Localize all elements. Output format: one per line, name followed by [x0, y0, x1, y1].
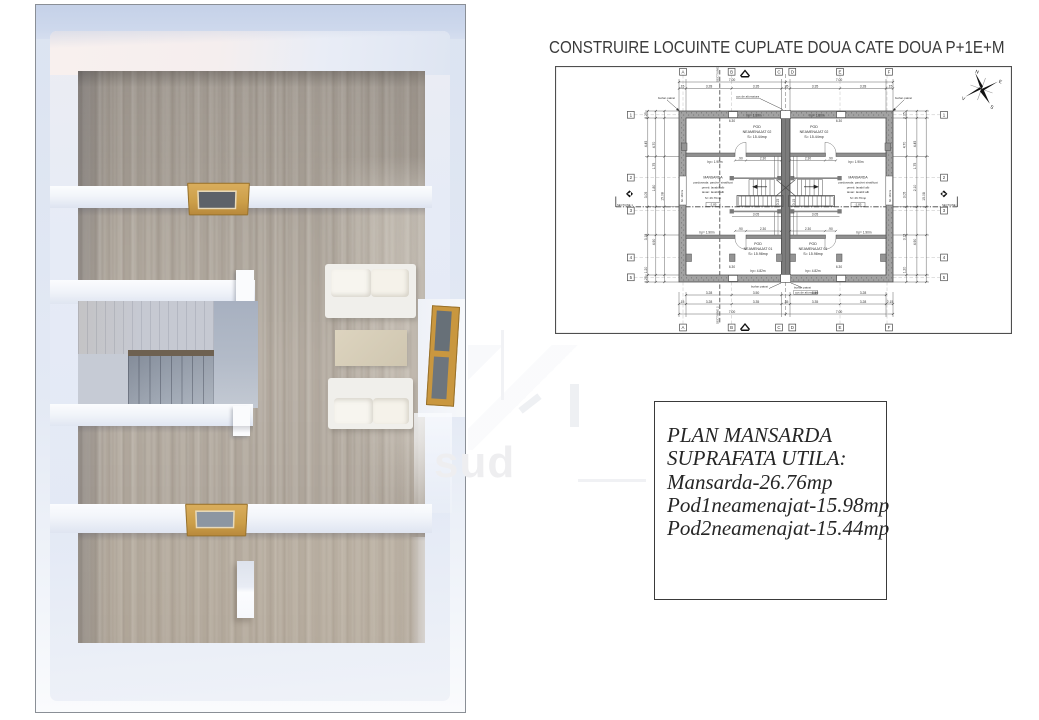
svg-text:3.35: 3.35: [753, 85, 760, 89]
svg-text:.15: .15: [888, 85, 893, 89]
svg-text:SECTIUNE 1: SECTIUNE 1: [942, 203, 958, 207]
svg-text:1.75: 1.75: [652, 163, 656, 170]
svg-text:hp= 1.90m: hp= 1.90m: [699, 231, 714, 235]
svg-text:6.30: 6.30: [729, 119, 735, 123]
svg-text:E: E: [839, 325, 842, 330]
svg-text:fer. 140cm: fer. 140cm: [888, 190, 892, 202]
svg-text:C: C: [777, 69, 780, 74]
svg-text:1.80: 1.80: [652, 185, 656, 192]
svg-text:3.05: 3.05: [812, 213, 819, 217]
svg-text:MANSARDA: MANSARDA: [703, 175, 723, 179]
svg-text:burlan patrat: burlan patrat: [895, 96, 912, 100]
svg-text:hp= 1.90m: hp= 1.90m: [856, 231, 871, 235]
svg-text:SECTIUNE 1: SECTIUNE 1: [617, 203, 633, 207]
svg-text:6.30: 6.30: [836, 119, 842, 123]
svg-text:S= 15.98mp: S= 15.98mp: [803, 252, 822, 256]
svg-text:2.15: 2.15: [887, 300, 894, 304]
svg-text:hp= 1.80m: hp= 1.80m: [746, 113, 761, 117]
svg-text:3.50: 3.50: [753, 291, 760, 295]
svg-text:S= 15.98mp: S= 15.98mp: [748, 252, 767, 256]
svg-text:MANSARDA: MANSARDA: [848, 175, 868, 179]
svg-text:.90: .90: [828, 227, 833, 231]
svg-text:D: D: [791, 325, 794, 330]
svg-text:15.08: 15.08: [922, 192, 926, 201]
svg-text:pereti: lavabil alb: pereti: lavabil alb: [847, 185, 870, 189]
svg-text:B: B: [730, 325, 733, 330]
svg-text:6.30: 6.30: [836, 265, 842, 269]
svg-text:15.08: 15.08: [660, 192, 664, 201]
svg-text:7.00: 7.00: [729, 310, 736, 314]
svg-text:burlan patrat: burlan patrat: [794, 286, 811, 290]
svg-text:POD: POD: [754, 242, 762, 246]
svg-text:2.30: 2.30: [760, 157, 766, 161]
svg-text:hp= 4.82m: hp= 4.82m: [750, 269, 765, 273]
svg-text:cos de afumatura: cos de afumatura: [795, 291, 819, 295]
svg-text:POD: POD: [809, 242, 817, 246]
svg-text:-2.85: -2.85: [855, 203, 862, 207]
svg-text:2.30: 2.30: [805, 157, 811, 161]
svg-text:7.00: 7.00: [836, 78, 843, 82]
svg-text:7.00: 7.00: [729, 78, 736, 82]
svg-text:.15: .15: [680, 300, 685, 304]
svg-text:3.28: 3.28: [860, 300, 867, 304]
svg-text:0.25: 0.25: [902, 112, 906, 119]
svg-text:NEAMENAJAT 01: NEAMENAJAT 01: [744, 247, 773, 251]
svg-text:3.05: 3.05: [753, 213, 760, 217]
svg-text:4.70: 4.70: [652, 142, 656, 149]
svg-text:fer. 140cm: fer. 140cm: [680, 190, 684, 202]
svg-text:.90: .90: [738, 157, 743, 161]
svg-text:S= 15.44mp: S= 15.44mp: [747, 135, 766, 139]
svg-text:burlan patrat: burlan patrat: [751, 285, 768, 289]
svg-text:4.90: 4.90: [913, 239, 917, 246]
svg-text:.90: .90: [828, 157, 833, 161]
svg-text:1.75: 1.75: [913, 163, 917, 170]
svg-text:tavan: lavabil alb: tavan: lavabil alb: [702, 190, 725, 194]
svg-text:0.25: 0.25: [644, 112, 648, 119]
svg-text:0.15: 0.15: [776, 199, 780, 206]
svg-text:hp= 1.90m: hp= 1.90m: [848, 160, 863, 164]
svg-text:.90: .90: [738, 227, 743, 231]
svg-text:1.20: 1.20: [644, 267, 648, 274]
svg-text:pereti: lavabil alb: pereti: lavabil alb: [702, 185, 725, 189]
svg-text:B: B: [730, 69, 733, 74]
svg-text:S= 26.76mp: S= 26.76mp: [705, 196, 722, 200]
svg-text:3.28: 3.28: [860, 85, 867, 89]
svg-text:SECTIUNE 2: SECTIUNE 2: [716, 306, 720, 324]
svg-text:cos de afumatura: cos de afumatura: [736, 95, 760, 99]
svg-text:A: A: [682, 69, 685, 74]
svg-text:1.20: 1.20: [902, 267, 906, 274]
svg-text:3.28: 3.28: [706, 291, 713, 295]
svg-text:3.28: 3.28: [706, 85, 713, 89]
svg-text:.35: .35: [784, 85, 789, 89]
svg-text:.15: .15: [680, 85, 685, 89]
svg-text:-2.85: -2.85: [710, 203, 717, 207]
svg-text:burlan patrat: burlan patrat: [658, 96, 675, 100]
svg-text:S= 15.44mp: S= 15.44mp: [804, 135, 823, 139]
svg-text:4.45: 4.45: [644, 141, 648, 148]
svg-text:7.00: 7.00: [836, 310, 843, 314]
svg-text:E: E: [839, 69, 842, 74]
svg-text:6.30: 6.30: [729, 265, 735, 269]
svg-text:.35: .35: [784, 300, 789, 304]
svg-text:C: C: [777, 325, 780, 330]
svg-text:3.15: 3.15: [644, 234, 648, 241]
svg-text:0.15: 0.15: [792, 199, 796, 206]
svg-text:0.25: 0.25: [644, 276, 648, 283]
svg-text:4.70: 4.70: [902, 142, 906, 149]
svg-text:pardoseala: parchet stratifica: pardoseala: parchet stratificat: [693, 181, 733, 185]
svg-text:hp= 4.82m: hp= 4.82m: [805, 269, 820, 273]
svg-text:3.28: 3.28: [860, 291, 867, 295]
svg-text:NEAMENAJAT 02: NEAMENAJAT 02: [800, 130, 829, 134]
svg-text:2.30: 2.30: [760, 227, 766, 231]
svg-text:3.28: 3.28: [706, 300, 713, 304]
svg-text:POD: POD: [753, 125, 761, 129]
svg-text:3.15: 3.15: [902, 234, 906, 241]
svg-text:2.10: 2.10: [913, 185, 917, 192]
svg-text:F: F: [888, 325, 891, 330]
svg-text:2.30: 2.30: [805, 227, 811, 231]
svg-text:3.05: 3.05: [644, 192, 648, 199]
svg-text:NEAMENAJAT 01: NEAMENAJAT 01: [799, 247, 828, 251]
svg-text:3.35: 3.35: [753, 300, 760, 304]
svg-text:4.45: 4.45: [913, 141, 917, 148]
svg-text:S= 26.76mp: S= 26.76mp: [850, 196, 867, 200]
svg-text:POD: POD: [810, 125, 818, 129]
svg-text:A: A: [682, 325, 685, 330]
svg-text:pardoseala: parchet stratifica: pardoseala: parchet stratificat: [838, 181, 878, 185]
svg-text:hp= 1.80m: hp= 1.80m: [809, 113, 824, 117]
svg-text:tavan: lavabil alb: tavan: lavabil alb: [847, 190, 870, 194]
svg-text:D: D: [791, 69, 794, 74]
svg-text:4.90: 4.90: [652, 239, 656, 246]
svg-text:F: F: [888, 69, 891, 74]
svg-text:3.35: 3.35: [812, 85, 819, 89]
svg-text:3.05: 3.05: [902, 192, 906, 199]
svg-text:hp= 1.90m: hp= 1.90m: [707, 160, 722, 164]
svg-text:SECTIUNE 2: SECTIUNE 2: [716, 66, 720, 82]
svg-text:NEAMENAJAT 02: NEAMENAJAT 02: [743, 130, 772, 134]
svg-text:3.35: 3.35: [812, 300, 819, 304]
